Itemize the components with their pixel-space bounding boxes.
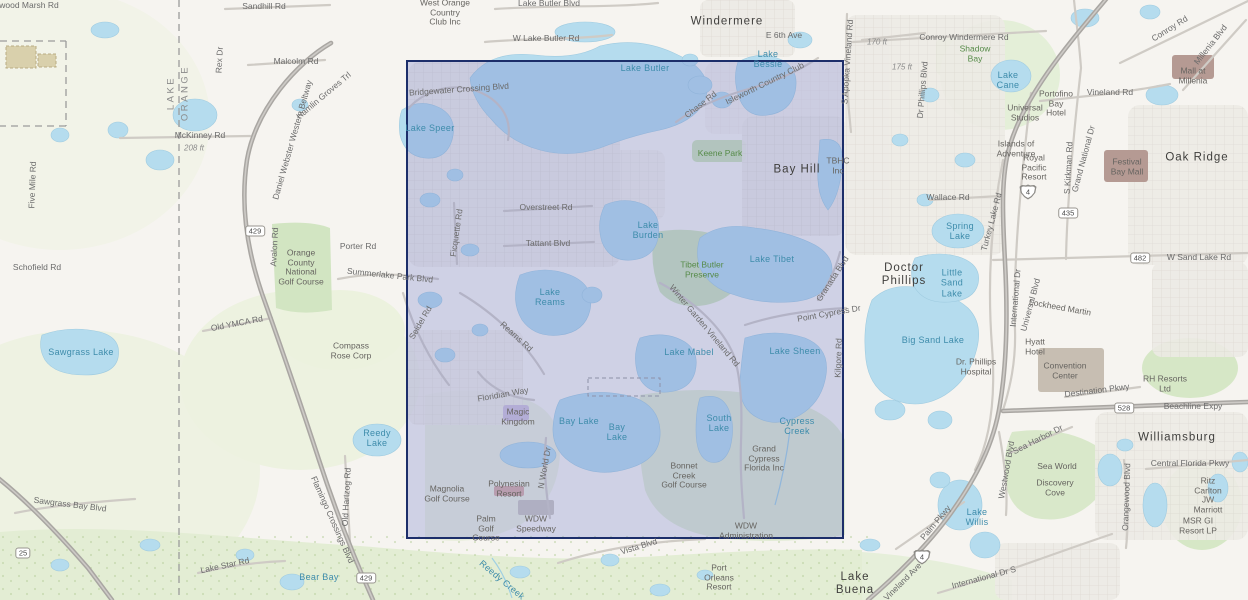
selection-extent-rectangle[interactable] (406, 60, 844, 539)
map-canvas[interactable]: wood Marsh RdSandhill RdRex DrMalcolm Rd… (0, 0, 1248, 600)
